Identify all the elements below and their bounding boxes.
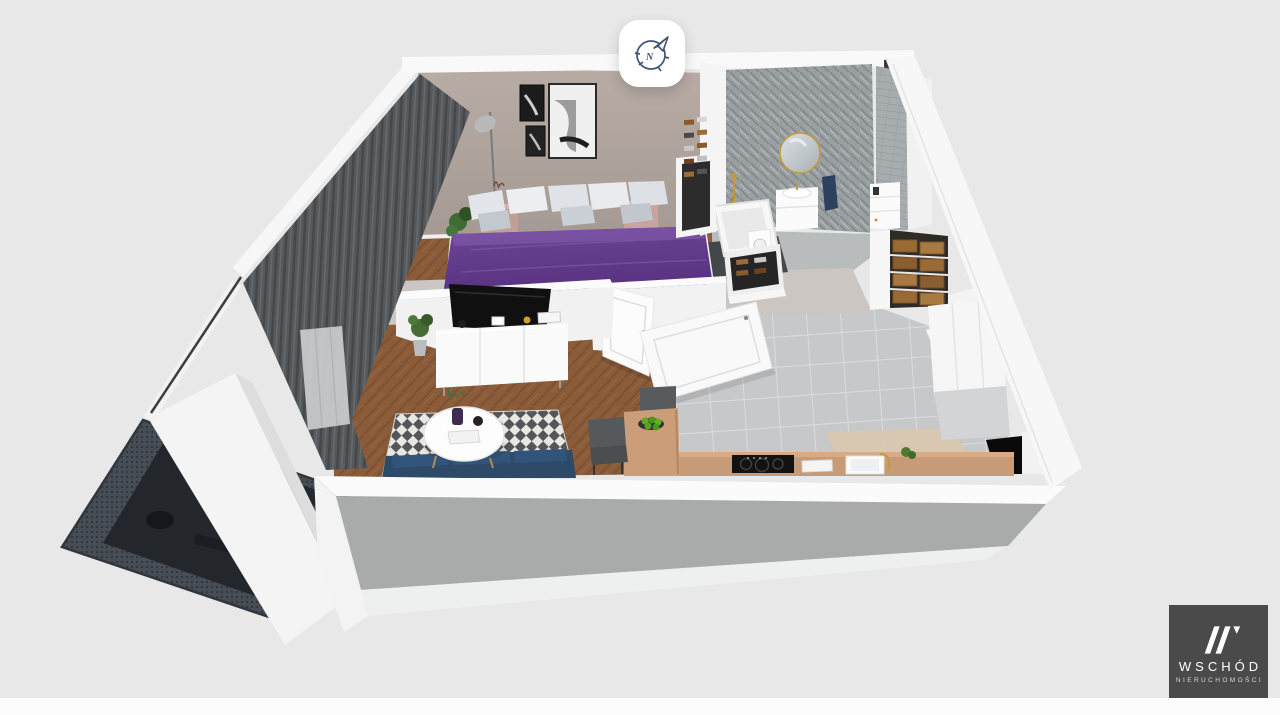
wardrobe-panels xyxy=(300,326,350,430)
balcony-chair xyxy=(146,511,174,529)
shoe-drawer xyxy=(724,244,786,304)
bedroom xyxy=(418,67,712,254)
compass-north-label: N xyxy=(645,52,654,63)
brand-watermark: WSCHÓD NIERUCHOMOŚCI xyxy=(1169,605,1268,703)
kitchen-sink xyxy=(846,454,889,474)
bathroom-shelf xyxy=(870,182,900,231)
w-slashes-icon xyxy=(1195,625,1243,655)
brand-name: WSCHÓD xyxy=(1179,659,1262,674)
floorplan-viewport[interactable]: N WSCHÓD NIERUCHOMOŚCI xyxy=(0,0,1280,715)
basket-wardrobe xyxy=(870,228,948,310)
cooktop xyxy=(732,455,794,473)
compass-button[interactable]: N xyxy=(619,20,685,87)
brand-tagline: NIERUCHOMOŚCI xyxy=(1176,677,1263,684)
floorplan-3d-render xyxy=(0,0,1280,715)
bathroom-mirror xyxy=(780,133,820,173)
compass-north-icon: N xyxy=(630,32,674,76)
bathroom-vanity xyxy=(776,183,818,231)
footer-strip xyxy=(0,698,1280,715)
